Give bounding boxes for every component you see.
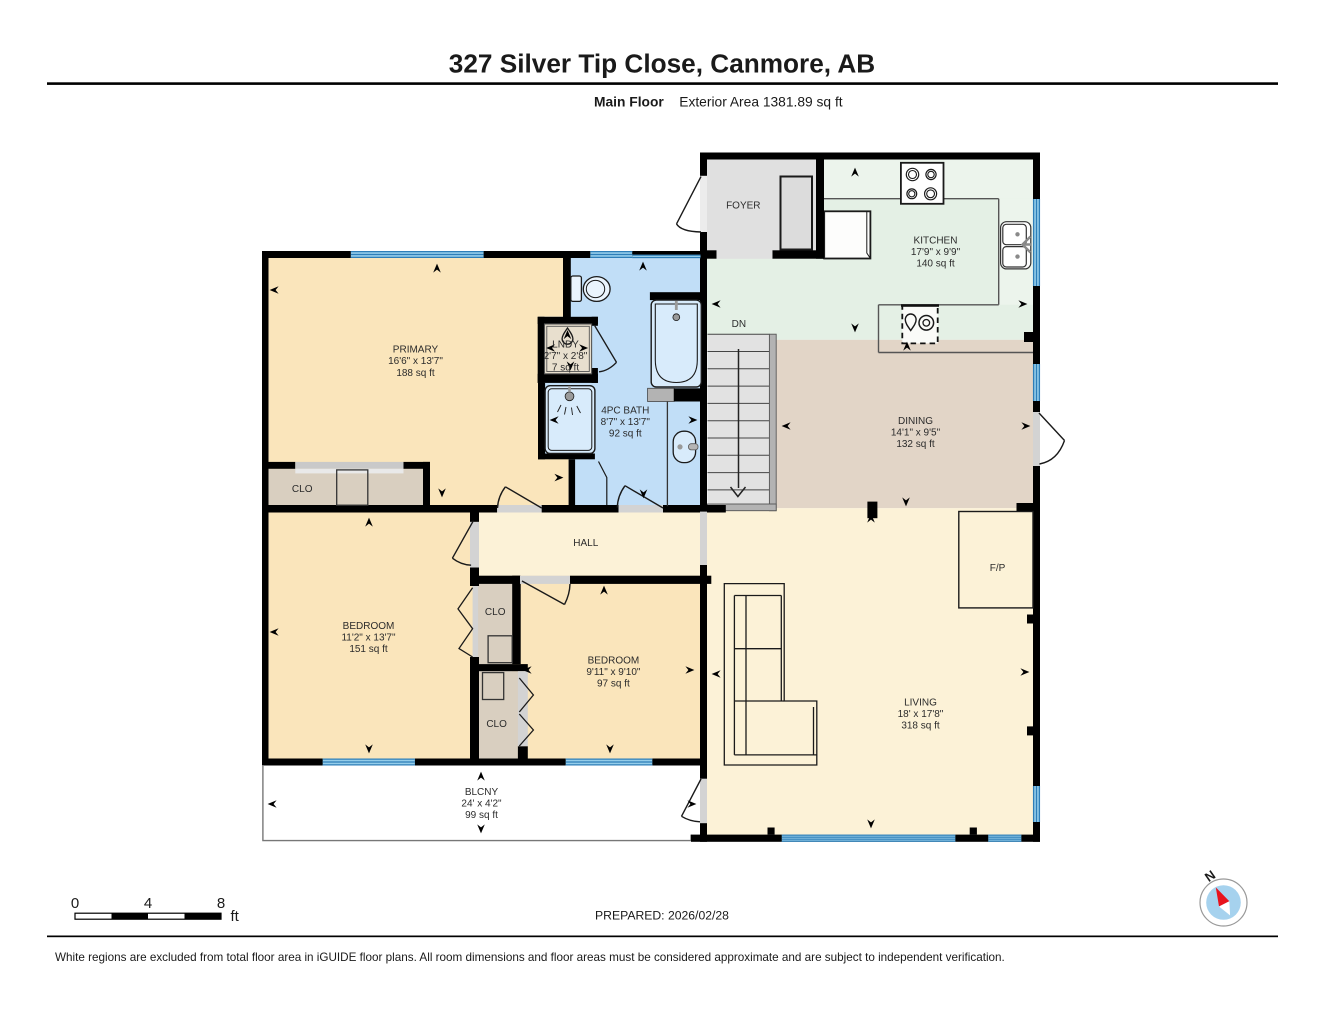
svg-text:LNDY: LNDY	[552, 340, 579, 351]
svg-text:DINING: DINING	[898, 416, 933, 427]
svg-text:18' x 17'8": 18' x 17'8"	[898, 709, 944, 720]
svg-text:PREPARED: 2026/02/28: PREPARED: 2026/02/28	[595, 909, 729, 923]
svg-text:F/P: F/P	[990, 563, 1006, 574]
svg-text:327 Silver Tip Close, Canmore,: 327 Silver Tip Close, Canmore, AB	[449, 49, 875, 79]
svg-text:7 sq ft: 7 sq ft	[552, 363, 579, 374]
svg-text:140 sq ft: 140 sq ft	[916, 259, 955, 270]
svg-text:CLO: CLO	[486, 719, 507, 730]
svg-text:24' x 4'2": 24' x 4'2"	[461, 799, 502, 810]
svg-text:99 sq ft: 99 sq ft	[465, 810, 498, 821]
svg-text:14'1" x 9'5": 14'1" x 9'5"	[891, 428, 941, 439]
svg-text:8'7" x 13'7": 8'7" x 13'7"	[601, 417, 651, 428]
svg-text:ft: ft	[231, 908, 240, 925]
svg-text:11'2" x 13'7": 11'2" x 13'7"	[341, 633, 396, 644]
svg-text:HALL: HALL	[573, 538, 598, 549]
svg-text:2'7" x 2'8": 2'7" x 2'8"	[544, 351, 588, 362]
svg-text:KITCHEN: KITCHEN	[914, 236, 958, 247]
svg-text:188 sq ft: 188 sq ft	[396, 368, 435, 379]
svg-text:92 sq ft: 92 sq ft	[609, 429, 642, 440]
svg-text:CLO: CLO	[485, 607, 506, 618]
svg-text:FOYER: FOYER	[726, 201, 760, 212]
svg-text:4: 4	[144, 895, 152, 912]
svg-text:LIVING: LIVING	[904, 698, 937, 709]
svg-text:8: 8	[217, 895, 225, 912]
svg-text:Main FloorExterior Area 1381.8: Main FloorExterior Area 1381.89 sq ft	[594, 95, 843, 110]
svg-text:0: 0	[71, 895, 79, 912]
svg-text:White regions are excluded fro: White regions are excluded from total fl…	[55, 951, 1005, 964]
svg-text:CLO: CLO	[292, 484, 313, 495]
svg-text:BEDROOM: BEDROOM	[343, 621, 395, 632]
svg-text:151 sq ft: 151 sq ft	[349, 644, 388, 655]
svg-text:16'6" x 13'7": 16'6" x 13'7"	[388, 356, 443, 367]
svg-text:132 sq ft: 132 sq ft	[896, 439, 935, 450]
svg-text:BLCNY: BLCNY	[465, 787, 499, 798]
svg-text:DN: DN	[732, 319, 746, 330]
svg-text:97 sq ft: 97 sq ft	[597, 679, 630, 690]
svg-text:9'11" x 9'10": 9'11" x 9'10"	[586, 667, 641, 678]
svg-text:4PC BATH: 4PC BATH	[601, 406, 649, 417]
svg-text:BEDROOM: BEDROOM	[588, 656, 640, 667]
svg-text:318 sq ft: 318 sq ft	[901, 721, 940, 732]
svg-text:PRIMARY: PRIMARY	[393, 345, 439, 356]
svg-text:17'9" x 9'9": 17'9" x 9'9"	[911, 247, 961, 258]
